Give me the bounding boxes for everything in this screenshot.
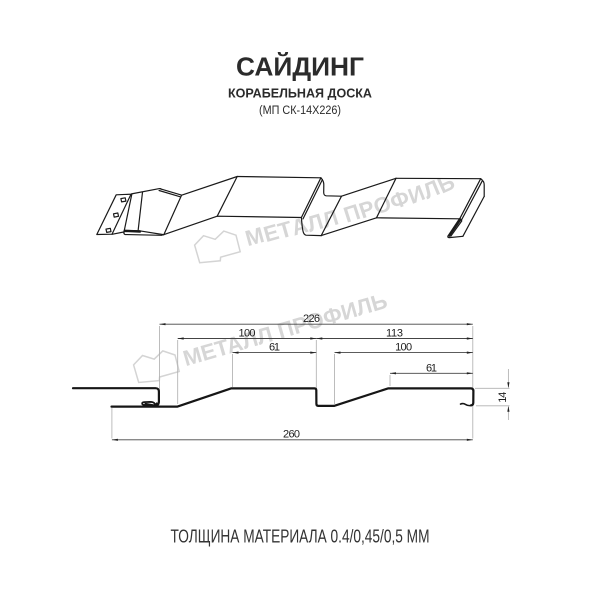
svg-text:260: 260 (283, 429, 300, 441)
svg-text:14: 14 (497, 392, 509, 403)
svg-text:100: 100 (239, 328, 256, 340)
svg-text:ТОЛЩИНА МАТЕРИАЛА 0.4/0,45/0,5: ТОЛЩИНА МАТЕРИАЛА 0.4/0,45/0,5 ММ (171, 527, 430, 547)
svg-text:САЙДИНГ: САЙДИНГ (236, 52, 364, 82)
svg-text:КОРАБЕЛЬНАЯ ДОСКА: КОРАБЕЛЬНАЯ ДОСКА (228, 86, 373, 101)
svg-text:226: 226 (303, 313, 320, 325)
svg-text:61: 61 (426, 362, 437, 374)
svg-text:100: 100 (395, 342, 412, 354)
svg-text:113: 113 (386, 328, 403, 340)
svg-text:61: 61 (269, 342, 280, 354)
svg-text:(МП СК-14Х226): (МП СК-14Х226) (259, 105, 341, 117)
